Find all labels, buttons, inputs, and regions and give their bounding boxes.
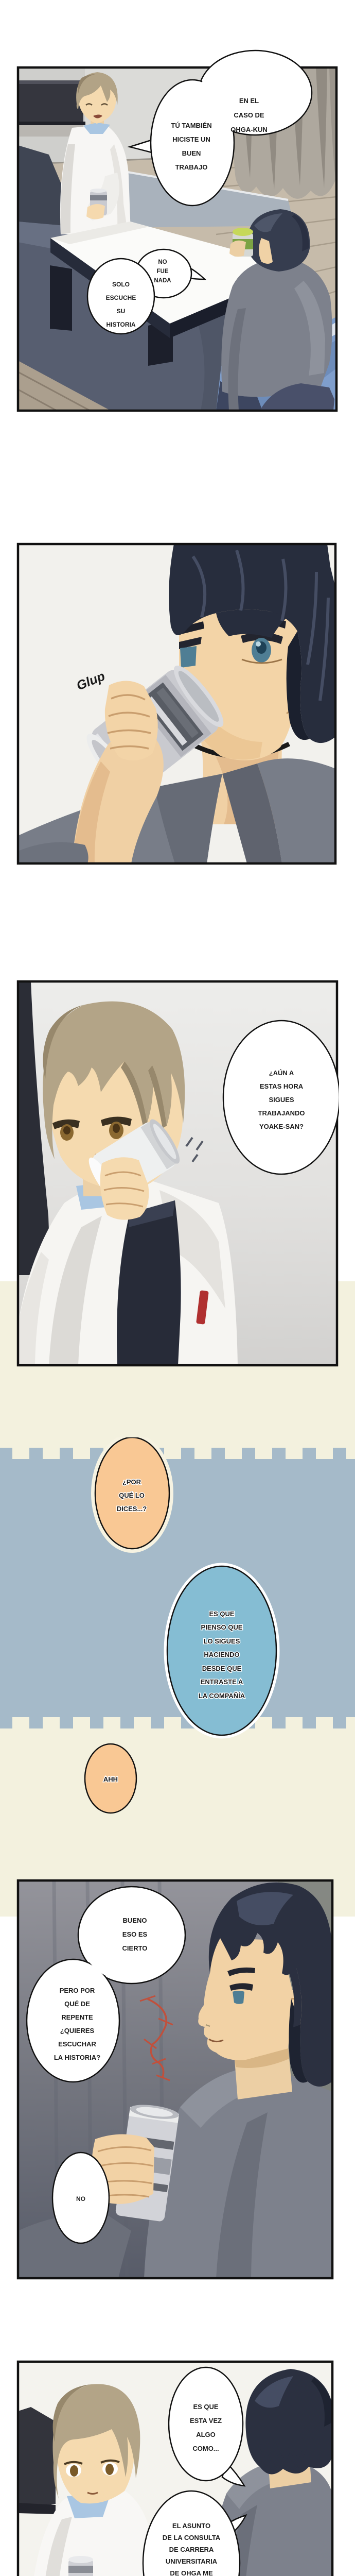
svg-text:PERO POR: PERO POR xyxy=(60,1987,95,1994)
svg-text:CIERTO: CIERTO xyxy=(122,1944,148,1952)
svg-text:QUÉ DE: QUÉ DE xyxy=(64,2000,90,2008)
svg-text:AHH: AHH xyxy=(103,1775,118,1783)
svg-text:LA COMPAÑÍA: LA COMPAÑÍA xyxy=(199,1692,245,1700)
svg-text:SU: SU xyxy=(117,308,126,315)
svg-text:ENTRASTE A: ENTRASTE A xyxy=(201,1678,243,1686)
svg-text:DE CARRERA: DE CARRERA xyxy=(169,2546,214,2553)
svg-text:QUÉ LO: QUÉ LO xyxy=(119,1492,145,1499)
svg-text:COMO...: COMO... xyxy=(192,2445,219,2452)
svg-text:DE LA CONSULTA: DE LA CONSULTA xyxy=(163,2534,221,2541)
svg-text:¿AÚN A: ¿AÚN A xyxy=(269,1069,294,1077)
svg-text:REPENTE: REPENTE xyxy=(61,2013,93,2021)
svg-text:ES QUE: ES QUE xyxy=(193,2403,218,2411)
svg-text:ESCUCHE: ESCUCHE xyxy=(106,294,136,301)
svg-text:FUE: FUE xyxy=(157,268,169,275)
svg-text:ESTA VEZ: ESTA VEZ xyxy=(190,2417,222,2425)
svg-text:DESDE QUE: DESDE QUE xyxy=(202,1665,242,1672)
svg-text:LA HISTORIA?: LA HISTORIA? xyxy=(54,2054,100,2061)
svg-text:TÚ TAMBIÉN: TÚ TAMBIÉN xyxy=(171,122,211,129)
svg-text:PIENSO QUE: PIENSO QUE xyxy=(201,1623,243,1631)
svg-text:ESCUCHAR: ESCUCHAR xyxy=(58,2040,96,2048)
svg-text:BUENO: BUENO xyxy=(123,1917,147,1924)
svg-text:ESO ES: ESO ES xyxy=(122,1930,148,1938)
svg-text:ESTAS HORA: ESTAS HORA xyxy=(260,1082,304,1090)
svg-text:SOLO: SOLO xyxy=(112,281,130,288)
svg-text:NADA: NADA xyxy=(154,278,171,284)
svg-text:UNIVERSITARIA: UNIVERSITARIA xyxy=(166,2557,218,2565)
svg-text:ES QUE: ES QUE xyxy=(209,1610,234,1618)
svg-text:TRABAJO: TRABAJO xyxy=(175,163,208,171)
svg-text:EL ASUNTO: EL ASUNTO xyxy=(172,2522,210,2530)
svg-text:NO: NO xyxy=(76,2195,85,2202)
svg-text:¿QUIERES: ¿QUIERES xyxy=(60,2027,95,2035)
svg-text:YOAKE-SAN?: YOAKE-SAN? xyxy=(259,1123,304,1130)
svg-text:HICISTE UN: HICISTE UN xyxy=(172,135,210,143)
svg-text:¿POR: ¿POR xyxy=(122,1478,141,1486)
svg-text:NO: NO xyxy=(158,259,167,265)
svg-text:OHGA-KUN: OHGA-KUN xyxy=(230,126,268,133)
svg-text:EN EL: EN EL xyxy=(239,97,259,105)
svg-text:LO SIGUES: LO SIGUES xyxy=(204,1637,240,1645)
svg-text:TRABAJANDO: TRABAJANDO xyxy=(258,1109,305,1117)
svg-text:HACIENDO: HACIENDO xyxy=(204,1651,239,1658)
svg-text:BUEN: BUEN xyxy=(182,149,201,157)
svg-text:CASO DE: CASO DE xyxy=(234,111,264,119)
svg-text:SIGUES: SIGUES xyxy=(269,1096,294,1104)
svg-text:HISTORIA: HISTORIA xyxy=(106,321,135,328)
svg-text:ALGO: ALGO xyxy=(196,2431,216,2438)
svg-text:DICES...?: DICES...? xyxy=(117,1505,147,1513)
svg-text:DE OHGA ME: DE OHGA ME xyxy=(170,2569,213,2576)
